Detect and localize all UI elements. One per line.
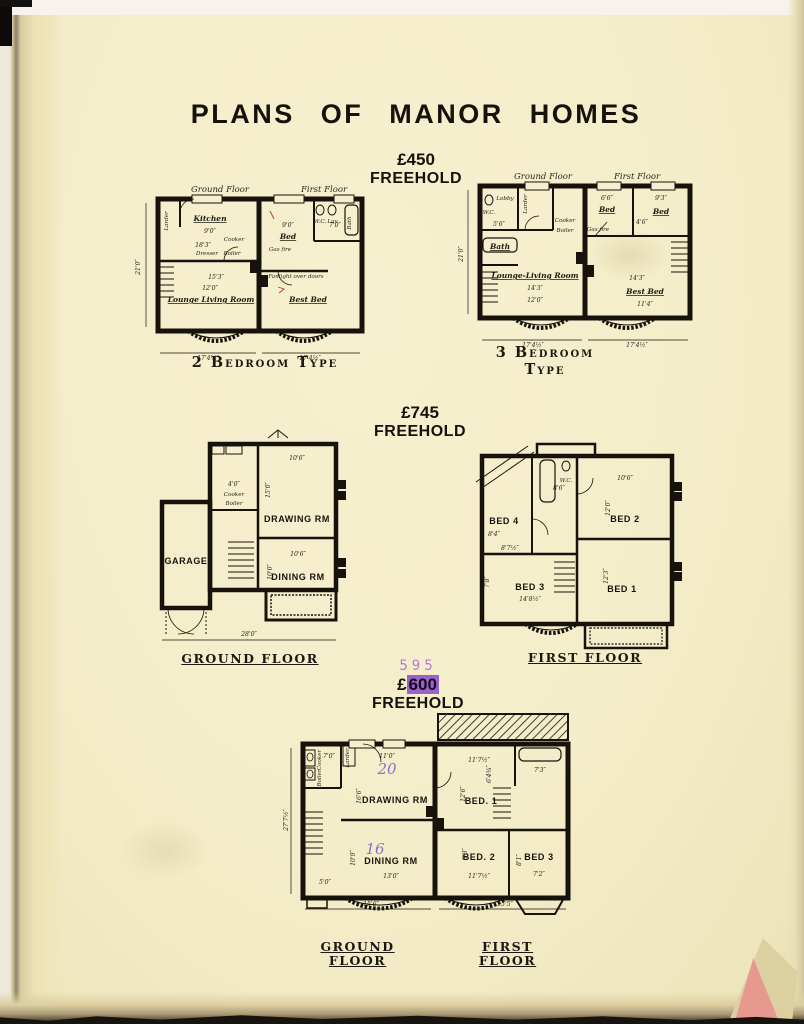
caption-3bed: 3 Bedroom Type (465, 345, 625, 378)
dim-lounge-span: 14'3″ (527, 285, 544, 292)
dim-bed2-depth: 12'0″ (605, 499, 612, 516)
plan1-header-ground: Ground Floor (191, 185, 250, 195)
caption-745-ground: Ground Floor (170, 652, 330, 666)
room-label-bed2: BED 2 (610, 514, 640, 524)
dim-hall-width: 5'6″ (493, 221, 506, 228)
dim-drawing-width: 10'6″ (289, 455, 306, 462)
dim-bed3-depth: 8'1″ (516, 853, 523, 866)
caption-3bed-line2: Type (465, 362, 625, 379)
price-600-value: 600 (407, 675, 439, 694)
dim-bed2-width: 11'7½″ (468, 873, 491, 880)
dim-first-width: 17'4½″ (626, 342, 649, 349)
dim-bed3-width: 7'2″ (533, 871, 546, 878)
dim-landing: 8'7½″ (501, 545, 520, 552)
dim-dining-depth: 10'9″ (350, 849, 357, 866)
room-label-bed: Bed (279, 232, 297, 241)
room-label-dining: DINING RM (271, 572, 324, 582)
room-label-cooker: Cooker (224, 492, 245, 498)
room-label-lobby: Lobby (495, 196, 514, 202)
dim-bed-front-depth: 4'6″ (635, 219, 649, 226)
plan-745g-walls (162, 430, 346, 640)
caption-745-first-text: First Floor (528, 650, 642, 665)
dim-landing: 6'4¾″ (486, 764, 493, 783)
dim-first-width: 15'5″ (497, 901, 514, 908)
room-label-bed1: BED 1 (607, 584, 637, 594)
room-label-gas-fire: Gas fire (587, 227, 610, 233)
room-label-bath: Bath (489, 242, 510, 251)
room-label-boiler: Boiler (555, 228, 573, 234)
dim-height: 21'0″ (458, 245, 465, 263)
scanned-brochure-page: PLANS OF MANOR HOMES £450 FREEHOLD (0, 0, 804, 1024)
room-label-wc: W.C. (314, 219, 327, 225)
room-label-gas-fire: Gas fire (269, 247, 292, 253)
dim-first-span: 14'3″ (629, 275, 646, 282)
room-label-bed-front: Bed (652, 207, 670, 216)
dim-bed1-depth: 12'3″ (603, 567, 610, 584)
room-label-garage: GARAGE (164, 556, 207, 566)
caption-600: Ground Floor First Floor (292, 940, 562, 969)
caption-2bed: 2 Bedroom Type (165, 355, 365, 372)
room-label-best-bed: Best Bed (625, 287, 665, 296)
caption-3bed-line1: 3 Bedroom (465, 345, 625, 362)
dim-dining-width: 13'0″ (383, 873, 400, 880)
price-block-600: 595 £600 FREEHOLD (343, 658, 493, 713)
floor-plan-2bed: Ground Floor First Floor Larder Kitchen … (128, 183, 393, 373)
dim-bed1-width: 11'7½″ (468, 757, 491, 764)
dim-best-bed-width: 11'4″ (637, 301, 654, 308)
dim-lounge-width: 12'0″ (202, 285, 219, 292)
scan-corner-shadow-top (0, 0, 32, 7)
floor-plan-745-first: W.C. 8'6″ BED 4 8'4″ 8'7½″ 7'8″ BED 3 14… (462, 424, 692, 656)
room-label-cooker: Cooker (555, 218, 576, 224)
plan2-header-first: First Floor (613, 172, 661, 182)
dim-bath-width: 8'6″ (553, 485, 566, 492)
dim-overall: 28'0″ (240, 631, 258, 638)
caption-600-ground: Ground Floor (292, 940, 423, 969)
dim-height: 27'7½″ (283, 808, 290, 832)
dim-kitchen-width: 9'0″ (204, 228, 217, 235)
room-label-bed3: BED 3 (515, 582, 545, 592)
dim-bath: 7'3″ (534, 767, 547, 774)
plan2-header-ground: Ground Floor (514, 172, 573, 182)
plan1-header-first: First Floor (300, 185, 348, 195)
plan-3bed-walls (468, 182, 690, 340)
room-label-kitchen: Kitchen (192, 214, 226, 223)
dim-drawing-depth: 15'0″ (265, 481, 272, 498)
room-label-drawing: DRAWING RM (362, 795, 428, 805)
dim-lounge-width: 12'0″ (527, 297, 544, 304)
dim-dining-depth: 10'0″ (267, 563, 274, 580)
room-label-larder: Larder (164, 211, 170, 232)
plan-600-walls (291, 714, 568, 914)
dim-bed-front-width: 9'3″ (655, 195, 668, 202)
dim-lounge-span: 15'3″ (208, 274, 225, 281)
room-label-bath: Bath (347, 216, 353, 231)
room-label-lounge: Lounge-Living Room (490, 271, 578, 280)
room-label-lounge: Lounge Living Room (167, 295, 255, 304)
caption-745-ground-text: Ground Floor (181, 651, 318, 666)
stamp-595: 595 (343, 658, 493, 675)
room-label-bed1: BED. 1 (465, 796, 498, 806)
room-label-larder: Larder (345, 748, 351, 769)
price-600-currency: £ (397, 675, 406, 694)
caption-745-first: First Floor (505, 651, 665, 665)
room-label-dining: DINING RM (364, 856, 417, 866)
dim-dining-width: 10'6″ (290, 551, 307, 558)
dim-bed-back-width: 6'6″ (601, 195, 614, 202)
floor-plan-745-ground: GARAGE 4'0″ Cooker Boiler DRAWING RM 10'… (148, 430, 358, 658)
room-label-wc: W.C. (560, 478, 573, 484)
dim-bed-width: 9'0″ (282, 222, 295, 229)
dim-bed3-width: 14'8½″ (519, 596, 542, 603)
dim-bed2-width: 10'6″ (617, 475, 634, 482)
room-label-bed-back: Bed (598, 205, 616, 214)
room-label-drawing: DRAWING RM (264, 514, 330, 524)
page-right-shade (788, 0, 804, 1024)
note-fanlight: Fanlight over doors (267, 274, 324, 280)
room-label-larder: Larder (523, 194, 529, 215)
dim-drawing-width: 11'0″ (379, 753, 396, 760)
page-title: PLANS OF MANOR HOMES (166, 99, 666, 130)
room-label-dresser: Dresser (195, 251, 219, 257)
floor-plan-3bed: Ground Floor First Floor W.C. Lobby Lard… (455, 170, 715, 355)
handwritten-20: 20 (376, 760, 397, 778)
dim-bed3-side: 7'8″ (484, 575, 491, 588)
price-450: £450 (341, 150, 491, 170)
dim-height: 21'0″ (135, 258, 142, 276)
room-label-boiler: Boiler (317, 769, 323, 787)
room-label-lav: Lav. (326, 219, 339, 225)
room-label-bed2: BED. 2 (463, 852, 496, 862)
dim-hall: 7'0″ (323, 753, 336, 760)
dim-kitchen-depth: 18'3″ (195, 242, 212, 249)
room-label-bed3: BED 3 (524, 852, 554, 862)
dim-ground-width: 15'6″ (363, 901, 380, 908)
price-745: £745 (345, 403, 495, 423)
floor-plan-600: Larder Cooker Boiler 7'0″ 11'0″ 16'6″ 20… (283, 708, 585, 926)
room-label-boiler: Boiler (222, 251, 240, 257)
paper-stain (120, 820, 210, 880)
dim-pantry: 4'0″ (227, 481, 241, 488)
room-label-bed4: BED 4 (489, 516, 519, 526)
room-label-cooker: Cooker (224, 237, 245, 243)
scan-top-strip (0, 0, 804, 15)
room-label-boiler: Boiler (224, 501, 242, 507)
dim-bed4-depth: 8'4″ (488, 531, 501, 538)
dim-porch: 5'0″ (319, 879, 332, 886)
room-label-best-bed: Best Bed (288, 295, 328, 304)
book-page-edge (0, 7, 62, 1024)
price-600: £600 (343, 675, 493, 695)
room-label-wc: W.C. (483, 210, 496, 216)
caption-600-first: First Floor (453, 940, 562, 969)
